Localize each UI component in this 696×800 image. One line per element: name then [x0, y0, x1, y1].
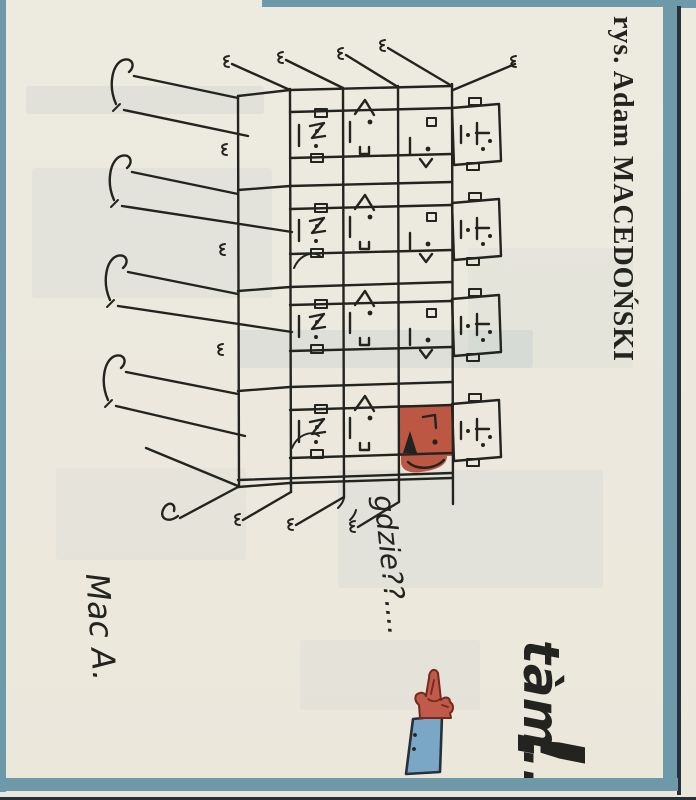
cartoon-illustration: gdzie??.... tàm.. ! Mac A. [0, 0, 696, 800]
window-face [299, 300, 327, 353]
window-face [410, 213, 436, 262]
sleeve [406, 716, 442, 774]
artist-credit: rys. Adam MACEDOŃSKI [606, 16, 638, 776]
window-face [452, 289, 501, 361]
page-border-rule [677, 6, 681, 795]
page-border-bottom [0, 778, 678, 791]
window-face [350, 291, 374, 345]
scanned-cartoon-page: gdzie??.... tàm.. ! Mac A. rys. Adam MAC… [0, 0, 696, 800]
window-face [410, 118, 436, 167]
window-face [299, 109, 327, 162]
roof-lines [224, 40, 516, 90]
window-face [350, 195, 374, 249]
page-border-left [0, 0, 6, 792]
window-face [452, 98, 501, 170]
window-face [452, 193, 501, 265]
speech-gdzie-text: gdzie??.... [367, 493, 415, 636]
window-face [410, 309, 436, 358]
balcony-hooks [104, 59, 292, 486]
window-face [452, 394, 501, 466]
page-border-right [663, 0, 677, 791]
ground-lines [162, 487, 399, 532]
window-face [350, 100, 374, 154]
signature-text: Mac A. [78, 572, 123, 682]
window-face [350, 396, 374, 450]
hand [415, 670, 453, 718]
window-face [299, 204, 327, 257]
exclamation-mark: ! [496, 728, 603, 770]
pointing-hand-icon [406, 670, 453, 774]
window-face [299, 405, 327, 458]
page-border-top [262, 0, 696, 7]
